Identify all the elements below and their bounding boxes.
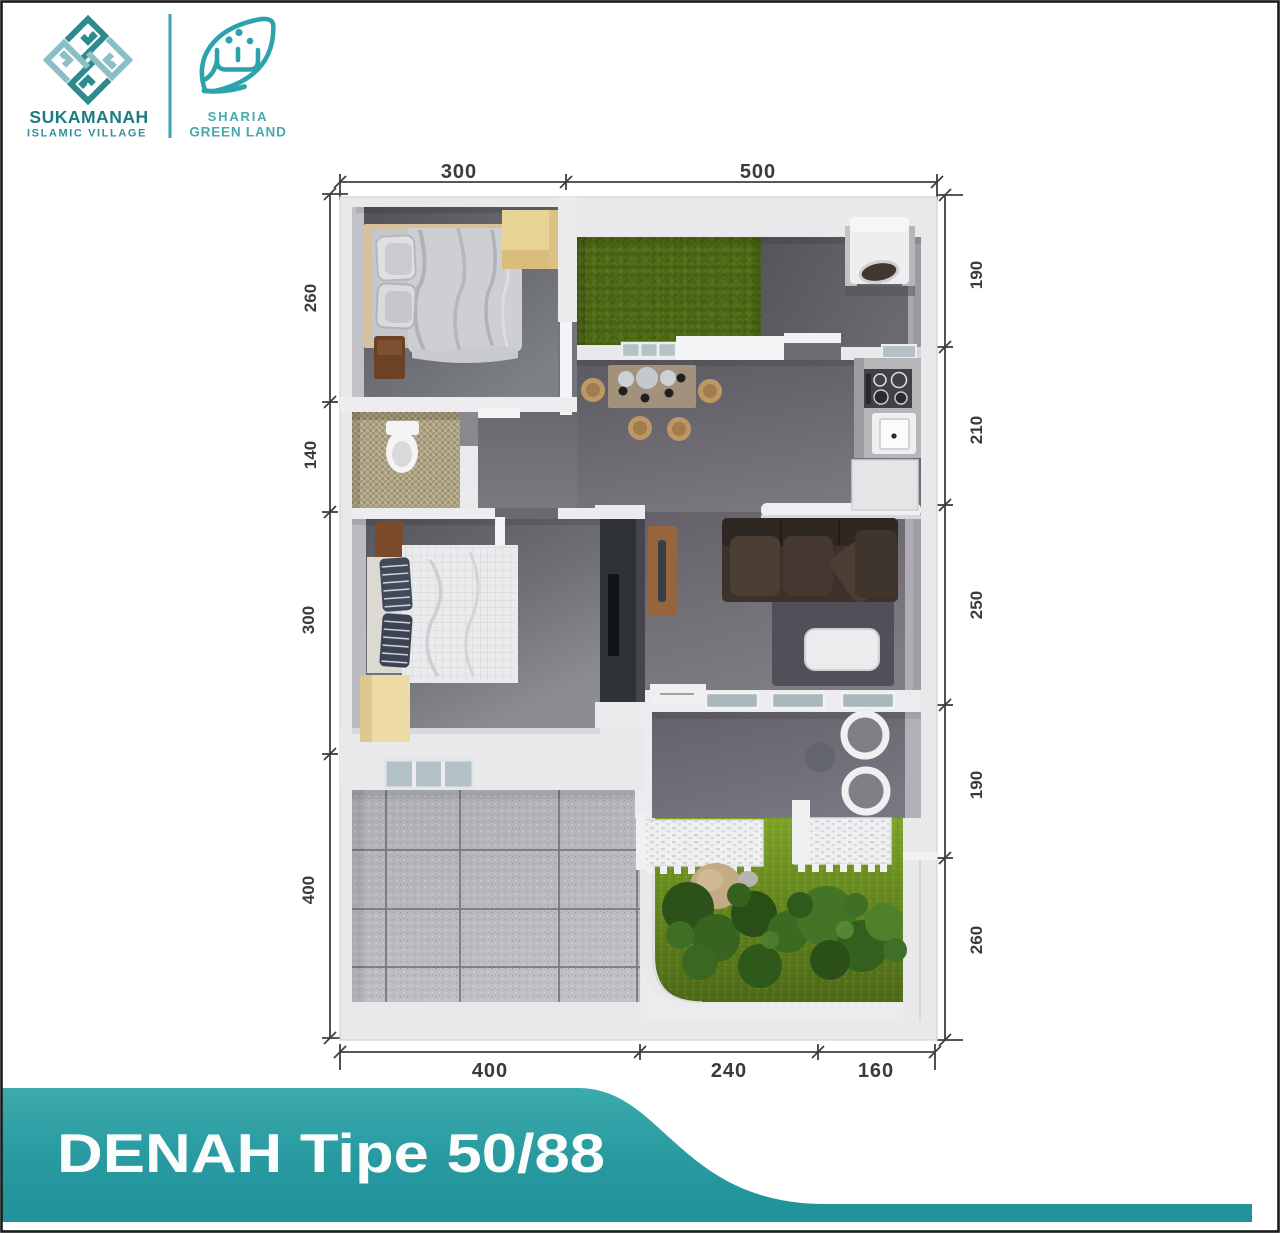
svg-text:400: 400: [299, 876, 318, 904]
svg-text:260: 260: [967, 926, 986, 954]
svg-text:500: 500: [740, 161, 776, 183]
svg-text:240: 240: [711, 1060, 747, 1082]
svg-text:GREEN LAND: GREEN LAND: [189, 125, 286, 140]
svg-text:190: 190: [967, 261, 986, 289]
svg-text:ISLAMIC VILLAGE: ISLAMIC VILLAGE: [27, 128, 147, 140]
svg-text:210: 210: [967, 416, 986, 444]
svg-text:140: 140: [301, 441, 320, 469]
svg-text:250: 250: [967, 591, 986, 619]
svg-text:400: 400: [472, 1060, 508, 1082]
svg-text:190: 190: [967, 771, 986, 799]
svg-text:260: 260: [301, 284, 320, 312]
svg-text:300: 300: [299, 606, 318, 634]
svg-text:SHARIA: SHARIA: [208, 109, 269, 124]
svg-text:160: 160: [858, 1060, 894, 1082]
svg-text:300: 300: [441, 161, 477, 183]
svg-text:SUKAMANAH: SUKAMANAH: [29, 107, 148, 127]
svg-text:DENAH Tipe 50/88: DENAH Tipe 50/88: [57, 1122, 605, 1184]
